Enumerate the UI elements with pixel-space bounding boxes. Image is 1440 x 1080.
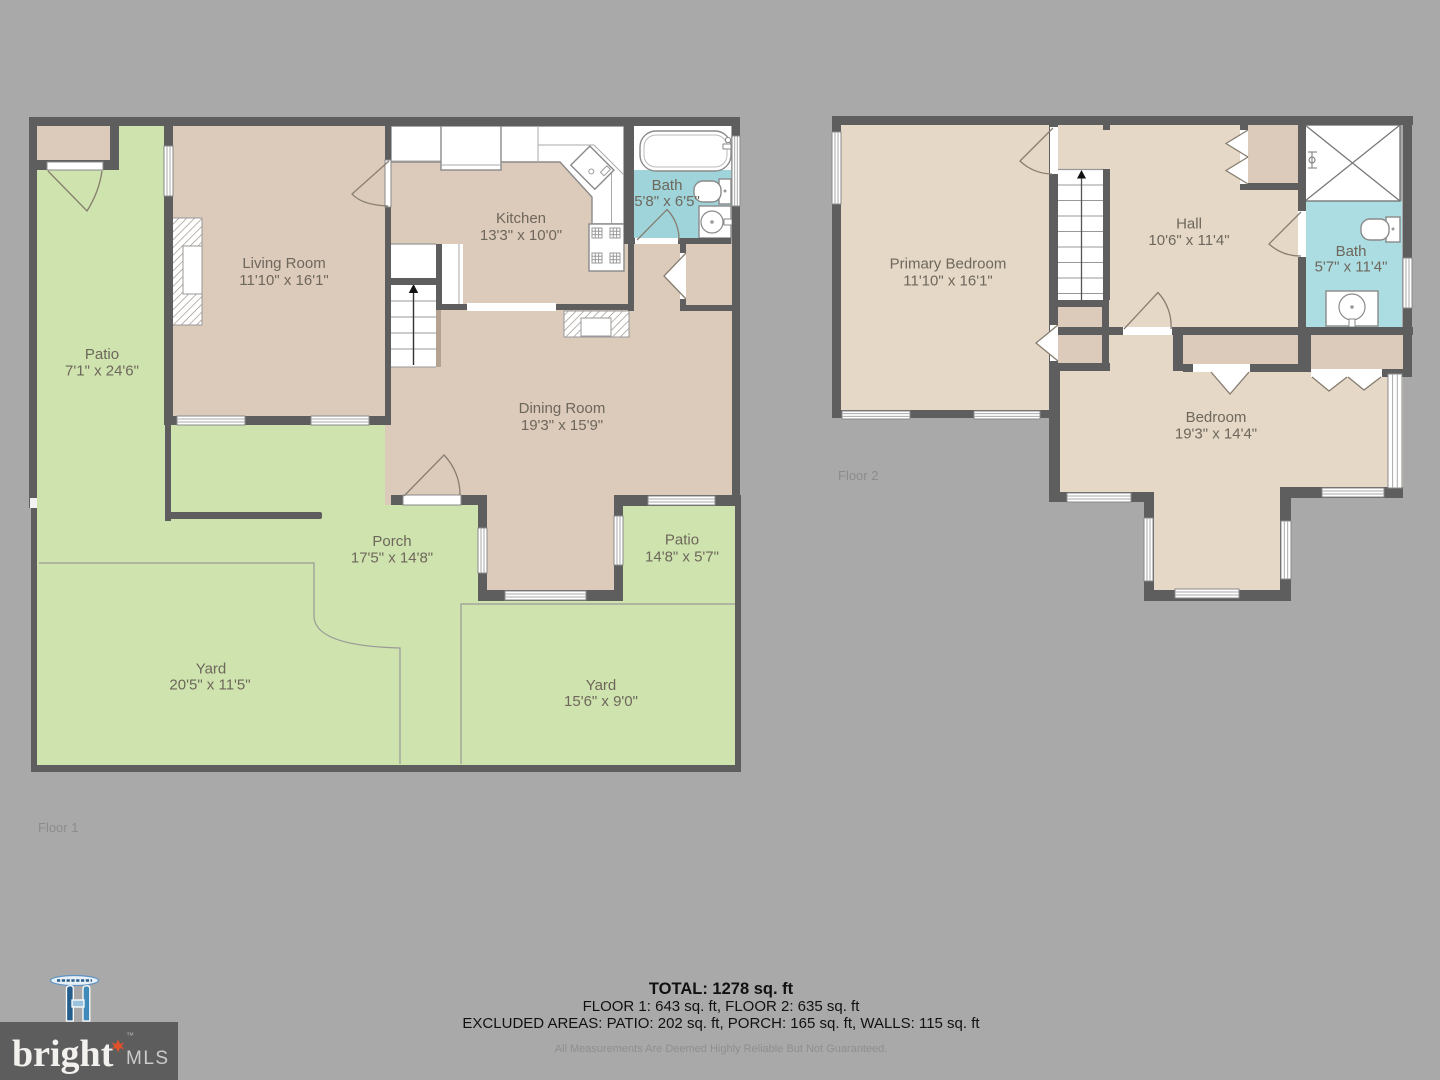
svg-text:Patio: Patio: [665, 532, 699, 549]
svg-text:5'8" x 6'5": 5'8" x 6'5": [634, 193, 700, 210]
svg-text:All Measurements Are Deemed Hi: All Measurements Are Deemed Highly Relia…: [555, 1043, 888, 1055]
svg-text:20'5" x 11'5": 20'5" x 11'5": [169, 677, 250, 694]
svg-text:Living Room: Living Room: [242, 255, 325, 272]
svg-text:bright: bright: [12, 1033, 114, 1075]
svg-text:19'3" x 14'4": 19'3" x 14'4": [1175, 426, 1257, 443]
svg-text:11'10" x 16'1": 11'10" x 16'1": [239, 272, 329, 289]
svg-text:17'5" x 14'8": 17'5" x 14'8": [351, 550, 433, 567]
svg-text:5'7" x 11'4": 5'7" x 11'4": [1315, 259, 1388, 276]
svg-text:13'3" x 10'0": 13'3" x 10'0": [480, 227, 562, 244]
svg-text:EXCLUDED AREAS: PATIO: 202 sq.: EXCLUDED AREAS: PATIO: 202 sq. ft, PORCH…: [462, 1015, 980, 1032]
svg-text:14'8" x 5'7": 14'8" x 5'7": [645, 549, 719, 566]
svg-text:7'1" x 24'6": 7'1" x 24'6": [65, 363, 139, 380]
svg-text:Bath: Bath: [1336, 243, 1367, 260]
svg-text:Floor 2: Floor 2: [838, 468, 878, 483]
svg-text:Yard: Yard: [196, 661, 227, 678]
svg-text:Yard: Yard: [586, 677, 617, 694]
svg-text:TOTAL: 1278 sq. ft: TOTAL: 1278 sq. ft: [649, 980, 794, 998]
svg-text:Kitchen: Kitchen: [496, 210, 546, 227]
svg-text:Dining Room: Dining Room: [519, 400, 606, 417]
svg-text:Primary Bedroom: Primary Bedroom: [890, 256, 1007, 273]
svg-text:Porch: Porch: [372, 533, 411, 550]
svg-text:11'10" x 16'1": 11'10" x 16'1": [903, 273, 993, 290]
svg-text:Floor 1: Floor 1: [38, 820, 78, 835]
svg-text:MLS: MLS: [126, 1048, 170, 1069]
svg-text:19'3" x 15'9": 19'3" x 15'9": [521, 417, 603, 434]
svg-text:15'6" x 9'0": 15'6" x 9'0": [564, 693, 638, 710]
svg-text:™: ™: [126, 1031, 134, 1040]
svg-text:Hall: Hall: [1176, 216, 1202, 233]
svg-text:Bedroom: Bedroom: [1186, 409, 1247, 426]
svg-text:Bath: Bath: [652, 177, 683, 194]
svg-text:Patio: Patio: [85, 346, 119, 363]
svg-text:FLOOR 1: 643 sq. ft, FLOOR 2:: FLOOR 1: 643 sq. ft, FLOOR 2: 635 sq. ft: [583, 998, 861, 1015]
svg-text:10'6" x 11'4": 10'6" x 11'4": [1148, 232, 1229, 249]
